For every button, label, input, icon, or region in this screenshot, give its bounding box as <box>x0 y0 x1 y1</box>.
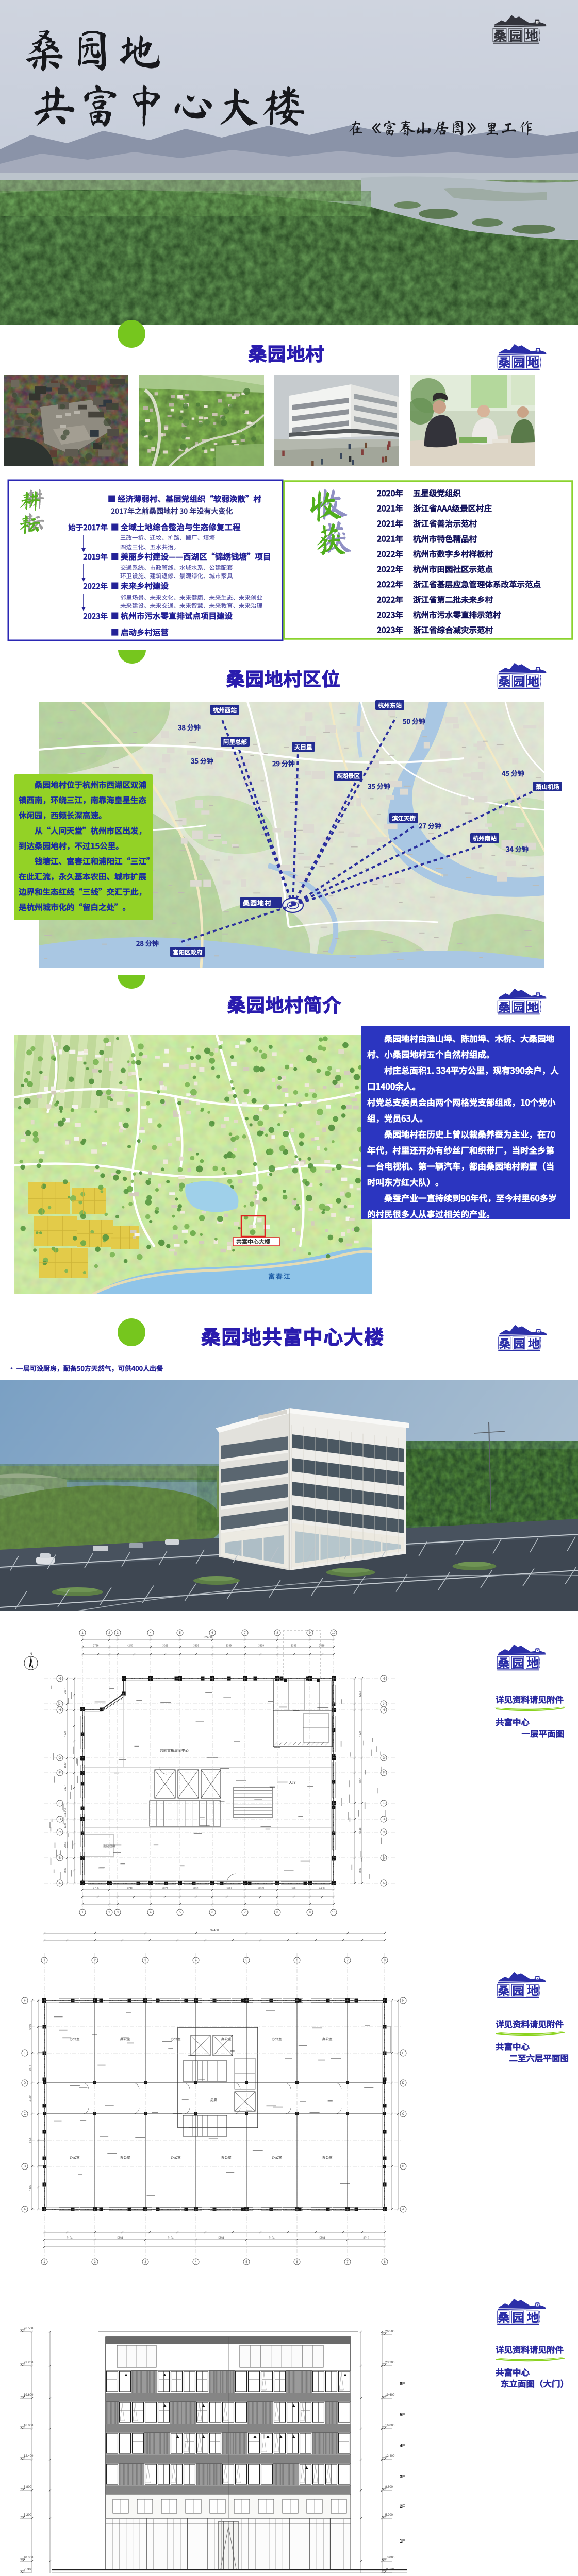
svg-text:G: G <box>383 1757 385 1760</box>
svg-text:5194: 5194 <box>117 2237 123 2240</box>
svg-text:F: F <box>59 1772 61 1775</box>
svg-text:C: C <box>59 1831 61 1834</box>
svg-text:E: E <box>59 1802 61 1805</box>
svg-text:J: J <box>59 1703 61 1706</box>
svg-text:D: D <box>24 2082 26 2085</box>
svg-text:3339: 3339 <box>226 1887 232 1890</box>
svg-text:4929: 4929 <box>64 1731 67 1737</box>
svg-text:4929: 4929 <box>359 1731 362 1737</box>
svg-text:3339: 3339 <box>193 1887 199 1890</box>
svg-text:26.500: 26.500 <box>385 2330 395 2333</box>
svg-text:F: F <box>383 1772 385 1775</box>
svg-text:H: H <box>59 1709 61 1712</box>
svg-text:3233: 3233 <box>359 1691 362 1697</box>
svg-text:5194: 5194 <box>269 2237 274 2240</box>
svg-text:B: B <box>24 2165 26 2168</box>
svg-text:A: A <box>402 2208 404 2211</box>
svg-text:C: C <box>24 2113 26 2116</box>
svg-text:C: C <box>402 2113 405 2116</box>
svg-text:1325: 1325 <box>64 1823 67 1828</box>
svg-text:2756: 2756 <box>93 1887 98 1890</box>
svg-text:8.800: 8.800 <box>385 2486 393 2489</box>
svg-text:26.500: 26.500 <box>24 2327 34 2330</box>
svg-text:R: R <box>59 1677 61 1681</box>
svg-text:2438: 2438 <box>319 1645 324 1648</box>
svg-text:10: 10 <box>332 1632 336 1635</box>
svg-text:1537: 1537 <box>64 1762 67 1768</box>
svg-text:C: C <box>383 1831 385 1834</box>
svg-text:A: A <box>24 2208 26 2211</box>
svg-text:R: R <box>383 1677 385 1681</box>
svg-text:3339: 3339 <box>226 1645 232 1648</box>
svg-text:3074: 3074 <box>29 2065 32 2071</box>
svg-text:G: G <box>59 1757 61 1760</box>
svg-text:E: E <box>383 1802 385 1805</box>
svg-text:3021: 3021 <box>162 1645 168 1648</box>
svg-text:2438: 2438 <box>319 1887 324 1890</box>
svg-text:3127: 3127 <box>64 1785 67 1791</box>
svg-text:4240: 4240 <box>127 1645 133 1648</box>
svg-text:3F: 3F <box>400 2474 405 2479</box>
svg-text:H: H <box>383 1709 385 1712</box>
svg-text:4F: 4F <box>400 2443 405 2448</box>
svg-text:5F: 5F <box>400 2412 405 2417</box>
svg-text:J: J <box>383 1703 385 1706</box>
svg-text:3180: 3180 <box>29 2095 32 2101</box>
svg-text:-0.300: -0.300 <box>24 2568 33 2571</box>
svg-text:2597: 2597 <box>359 1868 362 1873</box>
svg-text:2F: 2F <box>400 2504 405 2509</box>
svg-text:32400: 32400 <box>210 1929 219 1933</box>
svg-text:5194: 5194 <box>218 2237 224 2240</box>
svg-text:3339: 3339 <box>291 1645 296 1648</box>
svg-text:23.200: 23.200 <box>385 2361 395 2364</box>
svg-text:D: D <box>402 2082 405 2085</box>
svg-text:5194: 5194 <box>168 2237 173 2240</box>
svg-text:8.800: 8.800 <box>24 2486 32 2489</box>
svg-text:F: F <box>24 1999 26 2003</box>
svg-text:6F: 6F <box>400 2381 405 2386</box>
svg-text:E: E <box>24 2052 26 2055</box>
svg-text:5194: 5194 <box>319 2237 325 2240</box>
svg-text:5.200: 5.200 <box>24 2514 32 2517</box>
svg-text:10: 10 <box>332 1911 336 1914</box>
svg-text:4399: 4399 <box>29 2185 32 2191</box>
svg-text:4664: 4664 <box>359 1777 362 1783</box>
svg-text:3339: 3339 <box>291 1887 296 1890</box>
svg-text:N: N <box>30 1653 32 1656</box>
svg-text:B: B <box>402 2165 404 2168</box>
svg-text:5618: 5618 <box>359 1827 362 1833</box>
svg-text:D: D <box>59 1818 61 1821</box>
svg-text:32400: 32400 <box>204 1636 212 1639</box>
svg-text:5.200: 5.200 <box>385 2514 393 2517</box>
svg-text:5194: 5194 <box>67 2237 72 2240</box>
svg-text:2597: 2597 <box>64 1688 67 1694</box>
svg-text:F: F <box>402 1999 404 2003</box>
svg-text:1F: 1F <box>400 2538 405 2544</box>
svg-text:D: D <box>383 1818 385 1821</box>
svg-text:3339: 3339 <box>193 1645 199 1648</box>
svg-text:±0.000: ±0.000 <box>385 2556 395 2560</box>
svg-text:3339: 3339 <box>258 1887 264 1890</box>
svg-text:3339: 3339 <box>258 1645 264 1648</box>
svg-text:2756: 2756 <box>93 1645 98 1648</box>
svg-text:12.400: 12.400 <box>385 2455 395 2458</box>
svg-text:2597: 2597 <box>64 1868 67 1873</box>
svg-text:3816: 3816 <box>363 2237 369 2240</box>
svg-text:19.600: 19.600 <box>385 2394 395 2397</box>
svg-text:A: A <box>59 1882 61 1885</box>
svg-text:B: B <box>59 1857 61 1860</box>
svg-text:A: A <box>383 1882 385 1885</box>
svg-text:3021: 3021 <box>162 1887 168 1890</box>
svg-text:16.000: 16.000 <box>385 2424 395 2427</box>
svg-text:E: E <box>402 2052 404 2055</box>
svg-text:2650: 2650 <box>64 1842 67 1848</box>
svg-text:4240: 4240 <box>127 1887 133 1890</box>
